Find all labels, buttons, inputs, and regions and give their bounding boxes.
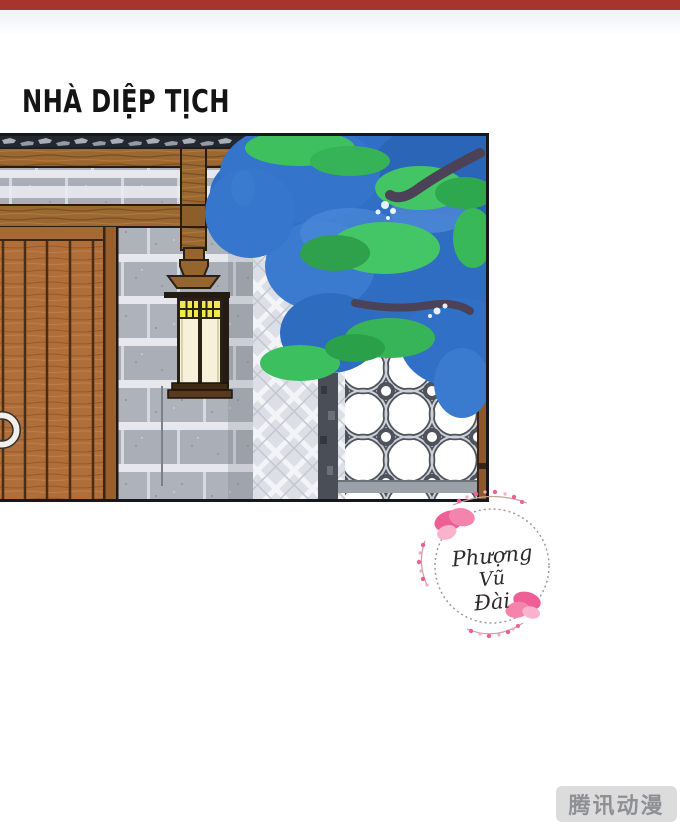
- comic-page: NHÀ DIỆP TỊCH: [0, 0, 680, 825]
- chapter-location-title: NHÀ DIỆP TỊCH: [22, 84, 230, 120]
- top-fade-gradient: [0, 10, 680, 36]
- panel-art: [0, 136, 486, 499]
- publisher-badge-label: 腾讯动漫: [568, 788, 664, 820]
- translator-watermark: Phượng Vũ Đài: [415, 489, 569, 643]
- top-red-bar: [0, 0, 680, 10]
- comic-panel: [0, 133, 489, 502]
- butterfly-top-left: [429, 498, 482, 542]
- publisher-badge: 腾讯动漫: [556, 786, 677, 822]
- wooden-plank-door: [0, 227, 119, 499]
